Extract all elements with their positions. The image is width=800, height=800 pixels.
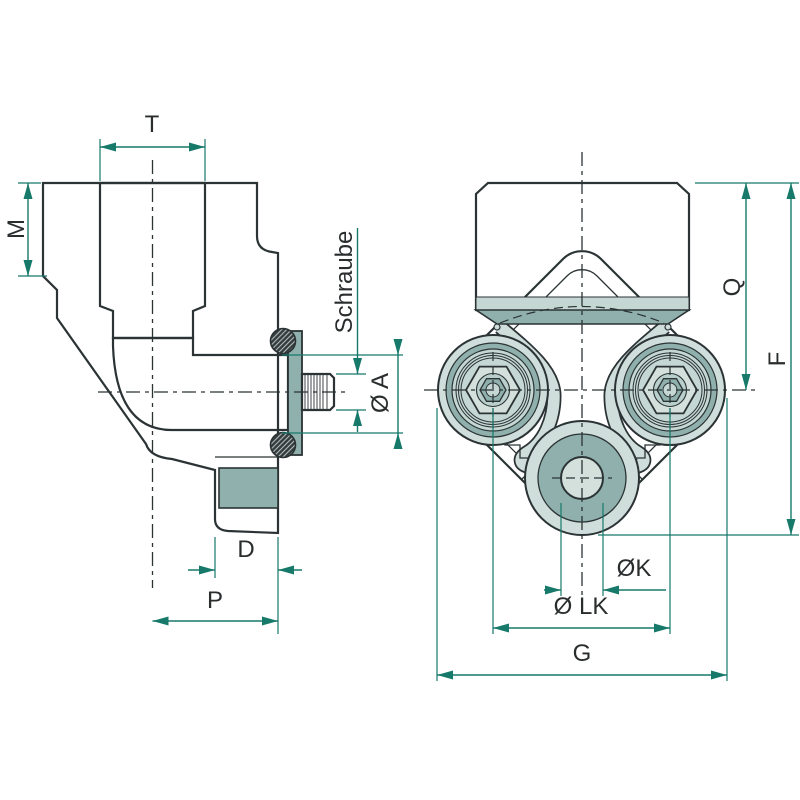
claw-tip-right: [665, 324, 671, 330]
dim-label-t: T: [145, 111, 160, 138]
o-ring-bottom: [271, 433, 296, 458]
dimension-D: D: [188, 536, 302, 634]
dim-label-olk: Ø LK: [554, 593, 609, 620]
dim-label-oa: Ø A: [367, 373, 394, 413]
dim-label-p: P: [207, 587, 223, 614]
dim-label-ok: ØK: [617, 555, 652, 582]
elbow-bore: [113, 338, 288, 430]
dimension-schraube: Schraube: [331, 228, 366, 432]
dimension-P: P: [153, 587, 279, 621]
dimension-M: M: [3, 183, 47, 276]
foot-pocket: [219, 468, 278, 508]
dim-label-d: D: [237, 536, 254, 563]
dim-label-f: F: [764, 352, 791, 367]
dim-label-g: G: [573, 640, 592, 667]
technical-drawing: T M Schraube Ø A: [0, 0, 800, 800]
dim-label-q: Q: [719, 278, 746, 297]
o-ring-top: [271, 329, 296, 354]
dim-label-m: M: [3, 219, 30, 239]
dim-label-schraube: Schraube: [331, 231, 358, 334]
drawing-canvas: T M Schraube Ø A: [0, 0, 800, 800]
claw-tip-left: [494, 324, 500, 330]
side-section-view: T M Schraube Ø A: [3, 111, 403, 634]
front-view: Q F ØK Ø LK G: [424, 152, 799, 681]
top-port-bore: [100, 183, 205, 338]
